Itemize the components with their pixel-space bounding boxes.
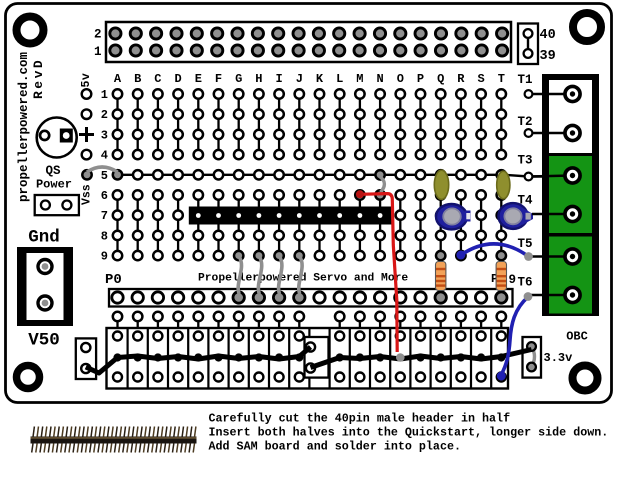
svg-text:6: 6	[101, 189, 108, 203]
svg-text:S: S	[477, 72, 484, 86]
svg-text:R: R	[457, 72, 465, 86]
svg-text:G: G	[235, 72, 242, 86]
svg-text:D: D	[174, 72, 181, 86]
svg-text:9: 9	[101, 250, 108, 264]
svg-text:propellerpowered.com: propellerpowered.com	[17, 51, 31, 202]
svg-text:Vss: Vss	[81, 184, 94, 205]
svg-text:QS: QS	[45, 164, 61, 178]
svg-text:P: P	[417, 72, 424, 86]
svg-text:3: 3	[101, 128, 108, 142]
svg-text:7: 7	[101, 209, 108, 223]
svg-text:P0: P0	[105, 272, 122, 288]
svg-text:C: C	[154, 72, 161, 86]
svg-text:Gnd: Gnd	[28, 228, 60, 248]
svg-text:Carefully cut the 40pin male h: Carefully cut the 40pin male header in h…	[209, 412, 511, 426]
svg-text:5v: 5v	[80, 73, 93, 88]
svg-text:T4: T4	[518, 194, 534, 208]
svg-text:H: H	[255, 72, 262, 86]
svg-text:E: E	[195, 72, 202, 86]
svg-text:1: 1	[94, 45, 102, 59]
svg-text:F: F	[215, 72, 222, 86]
svg-text:Add SAM board and solder into: Add SAM board and solder into place.	[209, 440, 462, 454]
svg-text:OBC: OBC	[566, 330, 588, 344]
svg-text:B: B	[134, 72, 141, 86]
svg-text:9: 9	[509, 273, 517, 287]
svg-text:J: J	[296, 72, 303, 86]
svg-text:I: I	[275, 72, 282, 86]
svg-text:Insert both halves into the Qu: Insert both halves into the Quickstart, …	[209, 426, 609, 440]
svg-text:2: 2	[94, 28, 102, 42]
svg-text:Q: Q	[437, 72, 444, 86]
svg-text:O: O	[397, 72, 404, 86]
svg-text:V50: V50	[28, 331, 60, 351]
svg-text:3.3v: 3.3v	[544, 351, 573, 365]
svg-text:L: L	[336, 72, 343, 86]
svg-text:M: M	[356, 72, 363, 86]
svg-text:T6: T6	[518, 276, 533, 290]
svg-text:A: A	[114, 72, 122, 86]
svg-text:Power: Power	[36, 178, 72, 192]
svg-text:T3: T3	[518, 154, 533, 168]
svg-text:T2: T2	[518, 115, 533, 129]
svg-text:N: N	[376, 72, 383, 86]
svg-text:K: K	[316, 72, 324, 86]
svg-text:8: 8	[101, 229, 108, 243]
svg-text:T: T	[498, 72, 505, 86]
svg-text:4: 4	[101, 149, 108, 163]
svg-text:40: 40	[540, 28, 556, 43]
svg-text:T1: T1	[518, 73, 533, 87]
svg-text:RevD: RevD	[31, 58, 46, 99]
svg-text:5: 5	[101, 169, 108, 183]
svg-text:T5: T5	[518, 237, 533, 251]
svg-text:Propellerpowered Servo and Mor: Propellerpowered Servo and More	[198, 273, 408, 285]
svg-text:2: 2	[101, 108, 108, 122]
svg-text:39: 39	[540, 49, 556, 64]
svg-text:1: 1	[101, 88, 108, 102]
